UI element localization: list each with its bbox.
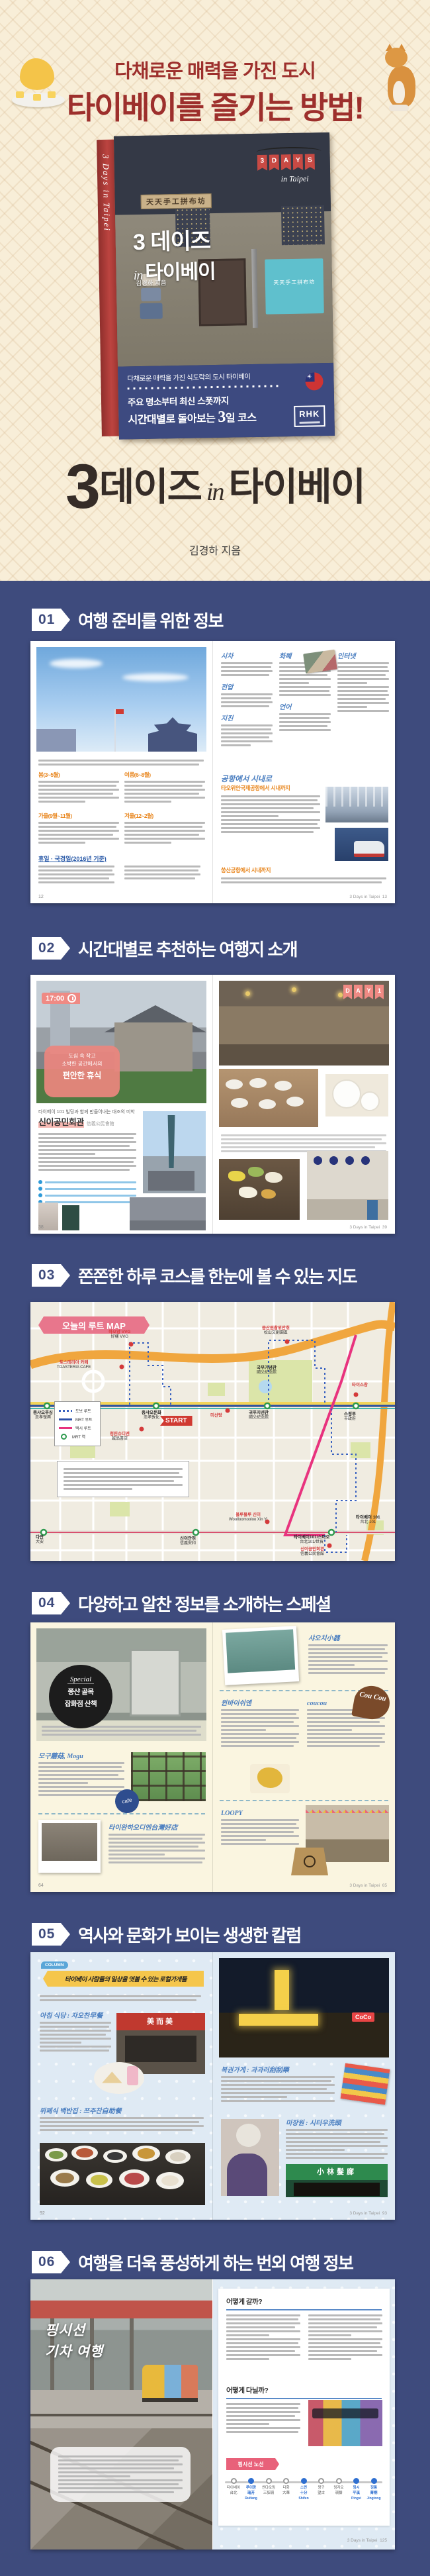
text-line [226,2431,298,2433]
text-line [40,2034,106,2036]
text-line [308,1644,388,1646]
label-sub: 好樣 VVG [108,1335,130,1340]
salon-sign: 小林髮廊 [286,2164,388,2180]
text-line [279,721,331,723]
photo-script-title: 핑시선 기차 여행 [45,2320,103,2362]
text-line [221,1729,266,1731]
map-label: 울루물루 신이Woolloomooloo Xin Yi [229,1512,267,1523]
text-line [221,666,271,668]
guide-text-col2 [308,2312,382,2362]
station-item: 다화大華 [278,2478,295,2501]
text-line [221,877,386,879]
entry-sub: 小器 [327,1635,340,1642]
section-03-title: 쫀쫀한 하루 코스를 한눈에 볼 수 있는 지도 [78,1263,357,1288]
pingxi-line-diagram: 타이베이台北 루이팡瑞芳Ruifang 싼댜오링三貂嶺 다화大華 스펀十分Shi… [225,2478,382,2501]
text-line [58,2467,174,2469]
text-line [308,1672,385,1674]
text-line [64,1484,183,1486]
text-line [307,1733,385,1735]
text-line [221,1721,294,1723]
flagpole [114,709,116,752]
entry-text [38,1760,124,1798]
text-line [308,2330,382,2332]
page-number: 64 [38,1883,44,1888]
map-legend: 도보 루트 MRT 루트 택시 루트 MRT 역 [54,1401,101,1446]
text-line [38,1141,136,1143]
text-line [108,1842,205,1844]
map-label: 다안大安 [36,1535,44,1546]
text-line [337,670,389,672]
map-label: 토스테리아 카페TOASTERIA CAFE [57,1360,91,1371]
entry-name: coucou [307,1700,327,1707]
text-line [124,830,205,832]
text-line [64,1488,132,1490]
text-line [40,2125,204,2127]
label-ko: 울루물루 신이 [229,1512,267,1518]
text-line [40,2046,111,2048]
spread-05-preview: COLUMN 타이베이 사람들의 일상을 엿볼 수 있는 로컬가게들 아침 식당… [30,1952,395,2220]
how-to-move-heading: 어떻게 다닐까? [226,2385,382,2399]
text-line [221,736,269,738]
intro-text-block [38,758,204,768]
text-line [40,2038,111,2040]
text-line [38,1157,136,1159]
text-line [38,838,119,840]
station-hanzi: 菁桐 [370,2491,377,2495]
text-line [307,1737,382,1739]
text-line [226,2354,300,2356]
photo-caption-overlay [36,1720,206,1741]
map-label: 스정푸市政府 [344,1412,356,1422]
station-hanzi: 瑞芳 [247,2491,255,2495]
section-04-badge: 04 [32,1592,70,1614]
book-promo-page: 다채로운 매력을 가진 도시 타이베이를 즐기는 방법! 3 Days in T… [0,0,430,2576]
phone-icon [38,1193,42,1197]
text-line [307,1729,352,1731]
text-line [279,694,331,696]
text-line [308,1648,385,1650]
text-line [38,789,119,791]
brand-footer: 3 Days in Taipei 65 [349,1883,387,1888]
day-flag: D [343,985,352,999]
text-line [38,781,119,783]
spread01-left-page: 봄(3~5월) 여름(6~8월) 가을(9월~11월) 겨울(12~2월) 휴일… [30,641,212,903]
text-line [286,2137,388,2139]
text-line [64,1468,183,1470]
text-line [226,2330,300,2332]
photo-food-tray [219,1159,300,1220]
text-line [221,1737,296,1739]
text-line [38,881,114,883]
mrt-route-swatch [59,1418,72,1420]
text-line [308,2322,382,2324]
book-cover-mockup: 3 Days in Taipei 天天手工拼布坊 天天手工拼布坊 3 D A [97,132,335,440]
text-line [108,1838,202,1840]
band3-suffix: 일 코스 [226,413,257,424]
overlay-line-emph: 편안한 휴식 [44,1069,120,1081]
text-line [40,2117,204,2119]
info-heading: 전압 [221,681,273,691]
text-line [337,674,386,676]
text-line [337,690,388,692]
text-line [337,694,389,696]
text-line [307,1741,385,1743]
text-line [308,2350,377,2352]
airport-text [221,793,320,835]
legend-label: MRT 루트 [75,1416,93,1422]
text-line [221,693,273,695]
station-hanzi: 望古 [318,2491,325,2495]
text-line [38,822,119,824]
pingxi-train [142,2365,198,2402]
meiermei-sign: 美而美 [116,2013,205,2030]
info-text [279,713,331,731]
station-ko: 타이베이 [227,2486,240,2490]
season-text [38,822,119,844]
text-line [279,729,331,731]
time-label: 17:00 [46,995,64,1003]
station-item: 타이베이台北 [225,2478,242,2501]
info-text [337,662,389,712]
brand-text: 3 Days in Taipei [349,895,380,899]
cat-paw [389,105,409,111]
taiwan-flag [116,709,124,714]
brand-footer: 3 Days in Taipei 125 [347,2538,387,2543]
station-dot [248,2478,254,2484]
text-line [337,706,367,708]
mrt-station-swatch [61,1434,67,1440]
text-line [221,1717,299,1719]
text-line [307,1725,385,1727]
text-line [221,2088,327,2090]
section-06-heading: 06 여행을 더욱 풍성하게 하는 번외 여행 정보 [32,2250,430,2274]
text-line [226,2423,269,2425]
dotted-divider [38,1813,205,1814]
text-line [58,2483,179,2485]
text-line [64,1480,174,1482]
text-line [221,1709,299,1711]
map-description-text [64,1468,183,1490]
text-line [226,2411,300,2413]
author-byline: 김경하 지음 [0,542,430,558]
entry-sub: 台灣好店 [151,1824,177,1832]
label-sub: 信義公民會館 [300,1552,324,1558]
station-dot [353,2478,359,2484]
section-05-badge: 05 [32,1923,70,1946]
info-col-1: 시차 전압 지진 [221,650,273,748]
shop-sign-plate: 天天手工拼布坊 [141,193,212,209]
flag-letter: 3 [257,155,267,171]
text-line [124,801,171,803]
overlay-line: 소박한 공간에서의 [44,1060,120,1068]
station-hanzi: 大華 [282,2491,290,2495]
text-line [221,795,320,797]
route-ribbon-badge: 핑시선 노선 [226,2458,275,2470]
text-line [337,678,389,680]
text-line [221,705,269,707]
text-line [337,666,388,668]
place-intro: 타이베이 101 빌딩과 함께 만들어내는 대조의 미학 [38,1109,135,1115]
station-dot [266,2478,272,2484]
text-line [42,1726,201,1728]
station-roman: Jingtong [365,2497,382,2501]
text-line [58,2459,179,2461]
mango-ice-shape [20,58,54,90]
text-line [226,2342,298,2344]
text-line [108,1854,165,1856]
text-line [64,1472,179,1474]
photo-tea-room [307,1151,388,1220]
spread02-left-page: 17:00 도심 속 작고 소박한 공간에서의 편안한 휴식 타이베이 101 … [30,975,212,1234]
station-roman: Shifen [295,2497,312,2501]
text-line [226,2358,269,2360]
station-ko: 징퉁 [370,2486,377,2490]
text-line [221,803,320,805]
text-line [221,674,269,676]
section-01-title: 여행 준비를 위한 정보 [78,608,223,632]
info-heading: 인터넷 [337,650,389,660]
label-sub: 台北101/世貿 [294,1540,330,1546]
station-ko: 다화 [282,2486,289,2490]
station-item: 핑시平溪Pingxi [348,2478,365,2501]
entry-name: 윈바이쉬엔 [221,1700,251,1707]
text-line [337,698,386,700]
page-number: 13 [382,895,387,899]
text-line [226,2419,300,2421]
station-ko: 싼댜오링 [262,2486,275,2490]
text-line [124,826,202,828]
band-tagline: 다채로운 매력을 가진 식도락의 도시 타이베이 [127,370,324,383]
photo-menu-board [62,1205,79,1230]
photo-hair-salon-sign: 小林髮廊 [286,2164,388,2197]
text-line [38,1782,88,1784]
text-line [38,793,113,795]
station-roof [30,2301,212,2318]
flag-letter: Y [293,154,303,170]
book-front-cover: 天天手工拼布坊 天天手工拼布坊 3 D A Y S in Taipei 3 데이… [114,132,335,440]
spread-03-map: 오늘의 루트 MAP START 하오양 VVG好樣 VVG 토스테리아 카페T… [30,1302,395,1561]
photo-old-street: 17:00 도심 속 작고 소박한 공간에서의 편안한 휴식 [36,981,206,1103]
text-line [221,823,318,825]
info-text [221,724,273,746]
spread05-right-page: CoCo 복권가게 : 과과러刮刮樂 미장원 : 시터우洗頭 小林髮廊 3 Da… [213,1952,395,2220]
text-line [226,2407,298,2409]
text-line [38,801,85,803]
season-text [38,781,119,803]
photo-bakery-counter [219,1069,318,1127]
text-line [221,2080,331,2082]
text-line [221,1142,386,1144]
info-heading: 언어 [279,701,331,711]
text-line [38,834,113,836]
text-line [286,2129,388,2131]
text-line [337,702,389,704]
label-ko: 토스테리아 카페 [57,1360,91,1365]
text-line [221,732,273,734]
special-line1: 쭝샨 골목 [49,1687,112,1697]
text-line [221,819,320,821]
text-line [38,1766,122,1768]
entry-name: 모구 [38,1753,50,1760]
text-line [226,2334,269,2336]
history-text-box [50,2447,191,2502]
map-label: 중샤오둔화忠孝敦化 [142,1411,161,1421]
day-flag: Y [365,985,373,999]
band3-prefix: 시간대별로 돌아보는 [128,413,215,426]
mango-cube [16,91,24,98]
text-line [221,740,273,742]
text-line [124,797,205,799]
photo-rail-tracks [30,2428,212,2550]
text-line [308,2358,351,2360]
station-dot [336,2478,342,2484]
text-line [58,2491,174,2493]
text-line [38,1161,134,1163]
street-pole [251,249,258,328]
holiday-block: 휴일 · 국경일(2016년 기준) [38,854,204,863]
station-dot [301,2478,307,2484]
photo-cafe-window [131,1752,206,1801]
info-text [221,662,273,676]
text-line [221,1138,382,1140]
map-label: 중샤오푸싱忠孝復興 [33,1411,53,1421]
text-line [124,869,198,871]
title-in: in [206,478,224,506]
text-line [337,686,389,688]
text-line [221,1134,386,1136]
text-line [221,1827,299,1829]
text-line [226,2346,300,2348]
label-sub: 信義安和 [180,1542,196,1547]
holiday-list [124,864,200,881]
text-line [221,728,271,730]
entry-hanzi: 刮刮樂 [269,2067,289,2074]
map-label: 미산탕 [210,1413,222,1418]
entry-title: 아침 식당 : 자오찬 [40,2012,89,2020]
spread06-left-page: 핑시선 기차 여행 [30,2279,212,2550]
section-01-heading: 01 여행 준비를 위한 정보 [32,581,430,632]
info-heading: 지진 [221,713,273,722]
text-line [226,2318,298,2320]
flag-letter: D [269,154,279,170]
entry-text [221,1707,299,1749]
text-line [308,2318,380,2320]
coucou-speech-bubble: Cou Cou [351,1683,392,1722]
map-pin-icon [38,1180,42,1184]
teal-shop-signboard: 天天手工拼布坊 [265,258,323,314]
entry-hanzi: 洗頭 [328,2120,341,2127]
spread-06-preview: 핑시선 기차 여행 어떻게 갈까? 어떻게 다닐까? [30,2279,395,2550]
history-text [58,2455,183,2493]
publisher-name: RHK [299,409,320,419]
text-line [40,2042,81,2044]
text-line [221,2076,335,2078]
entry-hanzi: 自助餐 [102,2108,122,2115]
text-line [221,1831,294,1833]
photo-cat-figurine [250,1764,290,1793]
text-line [286,2145,388,2147]
text-line [38,1762,124,1764]
spread01-right-page: 시차 전압 지진 화폐 언어 인터넷 공항에 [213,641,395,903]
legend-label: 택시 루트 [75,1425,91,1431]
building-silhouette [36,729,76,752]
label-sub: 忠孝復興 [33,1416,53,1421]
text-line [108,1858,205,1859]
title-word1: 데이즈 [99,466,201,509]
flag-letter: A [281,154,291,170]
text-line [279,713,331,715]
text-line [38,1137,134,1139]
brand-text: 3 Days in Taipei [347,2538,378,2543]
text-line [221,701,273,703]
page-number: 12 [38,895,44,899]
text-line [221,881,382,883]
text-line [38,785,116,787]
brand-footer: 3 Days in Taipei 93 [349,2211,387,2216]
text-line [38,1145,130,1147]
text-line [226,2427,300,2429]
time-badge: 17:00 [42,993,80,1004]
text-line [221,815,279,817]
text-line [38,1153,95,1155]
text-line [58,2463,183,2465]
section-05-heading: 05 역사와 문화가 보이는 생생한 칼럼 [32,1922,430,1946]
station-item: 루이팡瑞芳Ruifang [243,2478,260,2501]
text-line [38,1149,136,1151]
entry-name: 타이완하오디엔 [108,1824,151,1832]
text-line [279,678,331,680]
text-line [221,1713,296,1715]
hero-banner: 다채로운 매력을 가진 도시 타이베이를 즐기는 방법! 3 Days in T… [0,0,430,581]
text-line [308,2342,380,2344]
text-line [221,1725,299,1727]
title-word2: 타이베이 [229,466,365,509]
photo-pingxi-station: 핑시선 기차 여행 [30,2279,212,2428]
text-line [124,789,205,791]
season-fall: 가을(9월~11월) [38,812,119,846]
guide-text [226,2401,300,2435]
features-body: 01 여행 준비를 위한 정보 봄(3~5월) [0,581,430,2576]
horizontal-signboard [239,2014,318,2026]
station-item: 징퉁菁桐Jingtong [365,2478,382,2501]
text-line [221,662,273,664]
coco-text: CoCo [355,2014,371,2020]
text-line [64,1476,183,1478]
label-sub: 國父紀念館 [249,1416,269,1421]
script-line2: 기차 여행 [45,2342,103,2363]
text-line [226,2326,295,2328]
overlay-line: 도심 속 작고 [44,1052,120,1060]
map-label: 신이공민회관信義公民會館 [300,1547,324,1558]
station-dot [231,2478,237,2484]
photo-shop-interior: DAY1 [219,981,389,1065]
text-line [308,2326,377,2328]
photo-scratch-tickets [341,2063,390,2105]
mango-cube [33,94,41,101]
text-line [221,1745,294,1747]
walk-route-swatch [59,1410,72,1412]
text-line [42,1734,201,1736]
label-sub: 市政府 [344,1417,356,1422]
text-line [124,793,199,795]
text-line [279,682,309,684]
start-badge: START [160,1416,193,1426]
station-item: 스펀十分Shifen [295,2478,312,2501]
text-line [38,760,204,762]
text-line [221,1839,266,1841]
map-label: 쑹산원촹위안취松山文創園區 [262,1326,290,1336]
text-line [286,2141,380,2143]
